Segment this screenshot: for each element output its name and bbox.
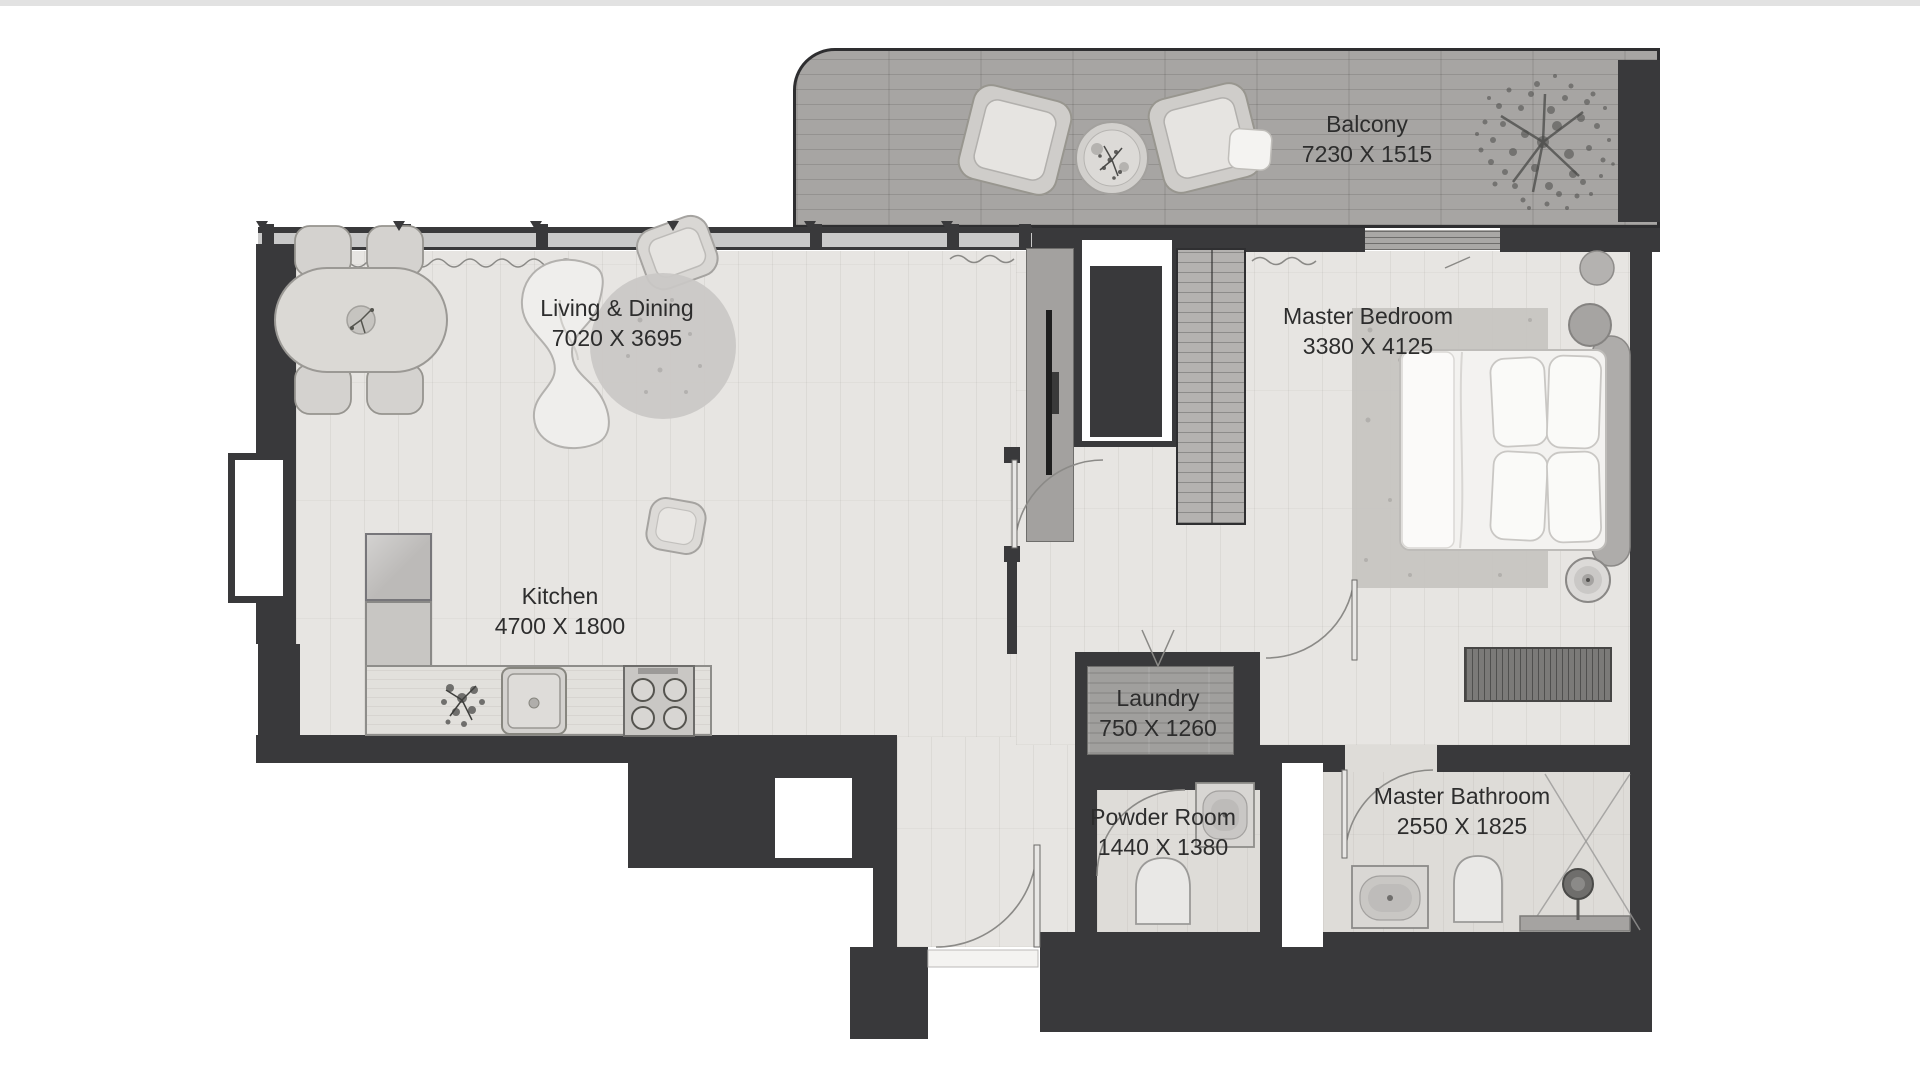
room-name: Kitchen — [495, 582, 625, 612]
entry-shaft-window — [775, 778, 852, 858]
room-dimensions: 750 X 1260 — [1099, 714, 1217, 744]
balcony-floor — [793, 48, 1660, 228]
room-label-master-bathroom: Master Bathroom 2550 X 1825 — [1374, 782, 1550, 842]
entry-bottom-block — [850, 947, 928, 1039]
powder-bath-gap — [1282, 763, 1323, 947]
room-label-powder-room: Powder Room 1440 X 1380 — [1090, 803, 1236, 863]
floorplan-canvas: Balcony 7230 X 1515 Living & Dining 7020… — [0, 0, 1920, 1080]
room-name: Master Bathroom — [1374, 782, 1550, 812]
bathroom-door-opening — [1345, 745, 1437, 772]
balcony-right-block — [1618, 60, 1660, 222]
corridor-stub-wall — [1007, 560, 1017, 654]
window-mullion — [536, 224, 548, 250]
room-name: Laundry — [1099, 684, 1217, 714]
tv-panel-icon — [1026, 248, 1074, 542]
window-mullion — [810, 224, 822, 250]
room-dimensions: 1440 X 1380 — [1090, 833, 1236, 863]
window-mullion — [399, 224, 411, 250]
room-name: Living & Dining — [540, 294, 693, 324]
room-label-laundry: Laundry 750 X 1260 — [1099, 684, 1217, 744]
kitchen-cabinet-icon — [365, 601, 432, 667]
wardrobe-divider — [1211, 250, 1213, 523]
corridor-door-jamb-top — [1004, 447, 1020, 463]
room-label-living-dining: Living & Dining 7020 X 3695 — [540, 294, 693, 354]
kitchen-counter — [365, 665, 712, 736]
room-label-kitchen: Kitchen 4700 X 1800 — [495, 582, 625, 642]
bottom-band — [1040, 932, 1652, 1032]
room-label-master-bedroom: Master Bedroom 3380 X 4125 — [1283, 302, 1453, 362]
entry-hall-floor — [897, 737, 1075, 947]
powder-right-wall — [1260, 763, 1282, 947]
room-name: Powder Room — [1090, 803, 1236, 833]
balcony-sliding-door — [1365, 230, 1500, 250]
room-dimensions: 7230 X 1515 — [1302, 140, 1432, 170]
right-wall — [1630, 228, 1652, 1032]
window-mullion — [673, 224, 685, 250]
bench-icon — [1464, 647, 1612, 702]
window-sill-line — [258, 247, 1032, 250]
room-name: Master Bedroom — [1283, 302, 1453, 332]
central-shaft-core — [1090, 266, 1162, 437]
room-dimensions: 2550 X 1825 — [1374, 812, 1550, 842]
left-service-shaft — [228, 453, 290, 603]
wardrobe-icon — [1176, 248, 1246, 525]
entry-vertical-wall — [873, 735, 897, 970]
window-mullion — [947, 224, 959, 250]
room-dimensions: 4700 X 1800 — [495, 612, 625, 642]
fridge-cabinet-icon — [365, 533, 432, 601]
room-name: Balcony — [1302, 110, 1432, 140]
window-mullion — [1019, 224, 1031, 250]
room-dimensions: 7020 X 3695 — [540, 324, 693, 354]
room-dimensions: 3380 X 4125 — [1283, 332, 1453, 362]
room-label-balcony: Balcony 7230 X 1515 — [1302, 110, 1432, 170]
page-top-edge — [0, 0, 1920, 6]
powder-top-wall — [1075, 772, 1260, 790]
kitchen-bottom-wall — [256, 735, 873, 763]
